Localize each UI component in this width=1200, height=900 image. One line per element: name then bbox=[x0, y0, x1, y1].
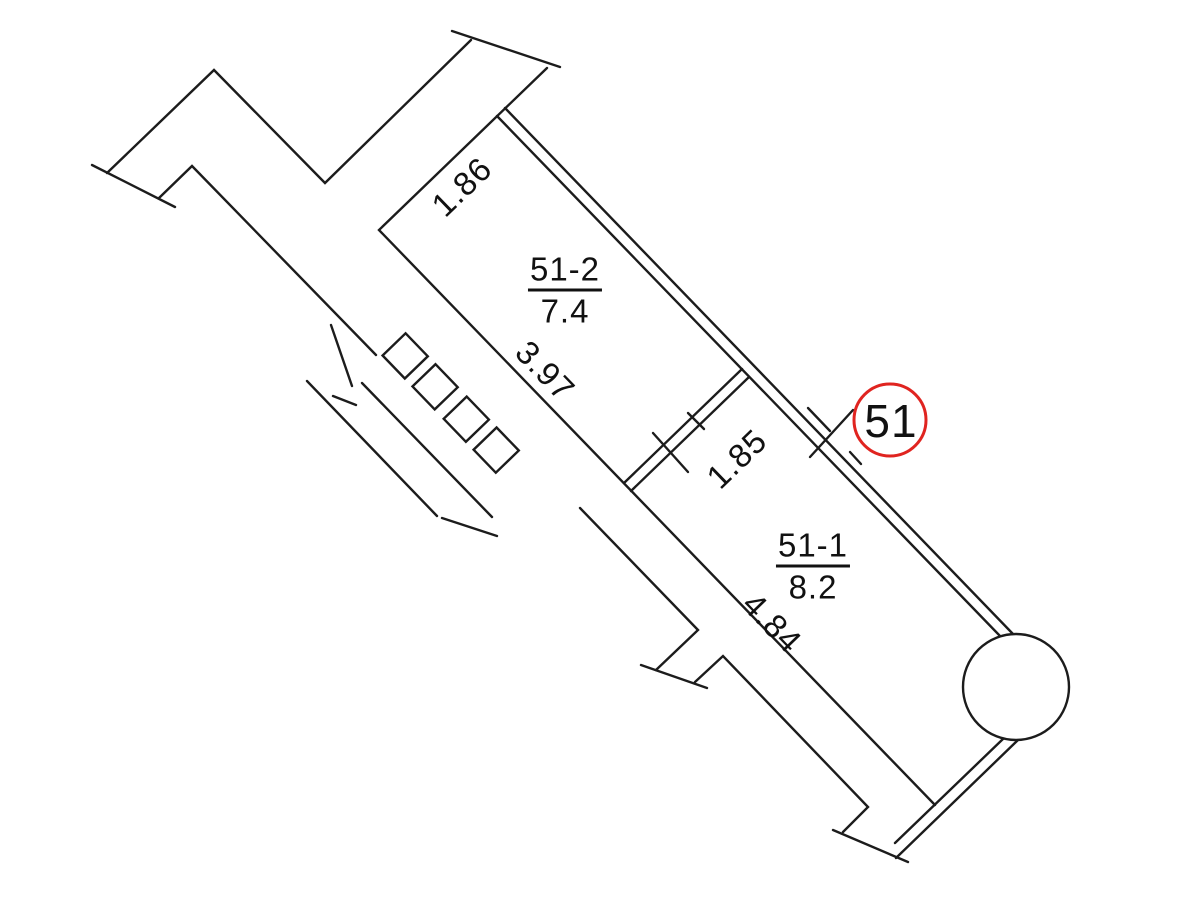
floor-plan-canvas: 51-2 7.4 51-1 8.2 1.86 3.97 1.85 4.84 51 bbox=[0, 0, 1200, 900]
wall-cut-tick bbox=[641, 665, 707, 688]
staircase-strip bbox=[307, 325, 519, 536]
outer-wall bbox=[497, 108, 1013, 636]
room-area: 7.4 bbox=[528, 292, 602, 328]
side-wall-outer-face bbox=[580, 508, 908, 862]
end-wall-bottom-right bbox=[895, 738, 1018, 858]
stair-square bbox=[413, 364, 458, 409]
room-number: 51-2 bbox=[528, 253, 602, 292]
wall-cut-tick bbox=[442, 518, 497, 536]
room-label-51-2: 51-2 7.4 bbox=[528, 253, 602, 328]
wall-cut-tick bbox=[452, 31, 560, 67]
side-wall-segment bbox=[695, 656, 868, 832]
room-label-51-1: 51-1 8.2 bbox=[776, 529, 850, 604]
wall-cut-tick bbox=[92, 165, 175, 207]
stair-square bbox=[444, 397, 489, 442]
room-area: 8.2 bbox=[776, 568, 850, 604]
zigzag-wall-line-2 bbox=[159, 166, 376, 355]
cut-wall-zigzag-top-left bbox=[92, 31, 560, 355]
stair-square bbox=[383, 333, 428, 378]
stair-square bbox=[474, 428, 519, 473]
outer-wall-outer-line bbox=[505, 108, 1013, 634]
room-number: 51-1 bbox=[776, 529, 850, 568]
side-wall-segment bbox=[580, 508, 698, 670]
column-circle bbox=[963, 634, 1069, 740]
zigzag-wall-line bbox=[107, 40, 471, 183]
unit-number: 51 bbox=[864, 394, 917, 448]
end-wall-line bbox=[895, 738, 1004, 843]
end-wall-line bbox=[896, 740, 1018, 858]
strip-wall-line bbox=[307, 381, 437, 516]
floor-plan-drawing bbox=[0, 0, 1200, 900]
outer-wall-stub bbox=[850, 452, 861, 464]
wall-cut-tick bbox=[331, 325, 352, 386]
wall-cut-tick bbox=[333, 396, 356, 405]
outer-wall-stub bbox=[808, 408, 830, 431]
